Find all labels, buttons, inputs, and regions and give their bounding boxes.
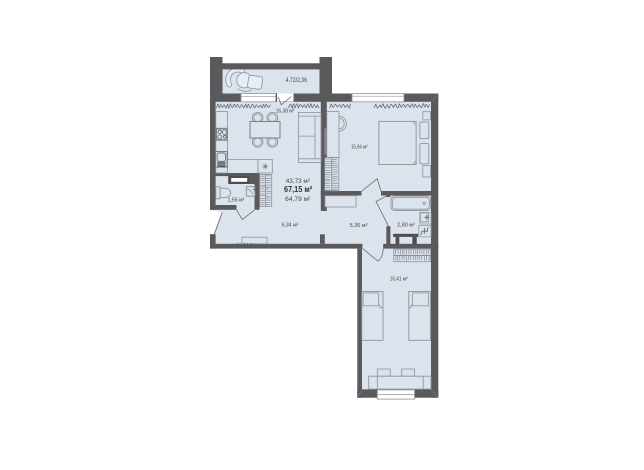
svg-text:43,73 м²: 43,73 м² — [286, 178, 311, 185]
svg-text:1,56 м²: 1,56 м² — [228, 198, 245, 204]
svg-text:15,94 м²: 15,94 м² — [351, 145, 368, 151]
svg-text:4,72/2,36: 4,72/2,36 — [286, 78, 308, 84]
svg-text:64,79 м²: 64,79 м² — [285, 196, 311, 203]
svg-text:67,15 м²: 67,15 м² — [284, 185, 313, 194]
svg-text:2,80 м²: 2,80 м² — [397, 223, 415, 229]
svg-text:16,41 м²: 16,41 м² — [390, 276, 408, 282]
svg-text:5,36 м²: 5,36 м² — [350, 223, 368, 229]
svg-text:16,38 м²: 16,38 м² — [276, 109, 295, 115]
svg-text:6,34 м²: 6,34 м² — [282, 223, 299, 229]
